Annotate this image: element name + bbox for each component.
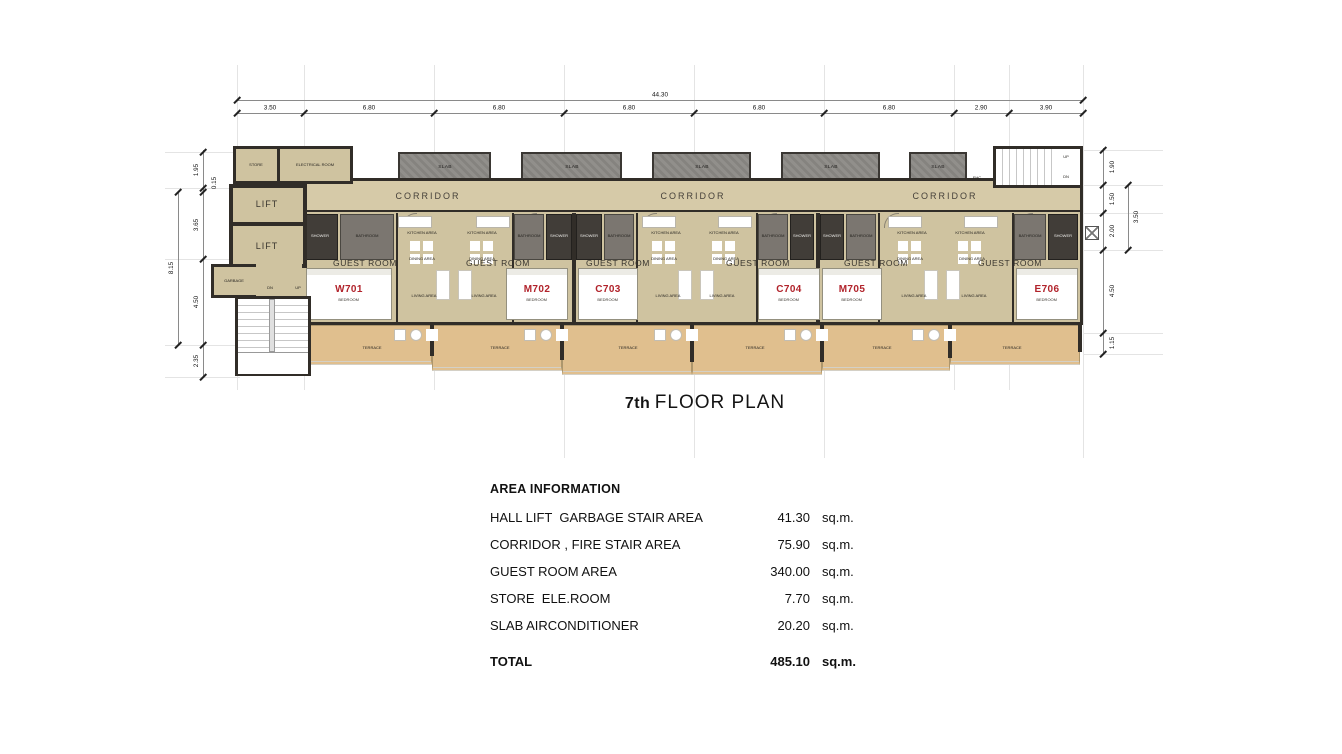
table-row: GUEST ROOM AREA 340.00 sq.m.	[490, 564, 874, 591]
dim-top: 6.80	[753, 104, 765, 111]
row-value: 7.70	[740, 591, 810, 606]
bedroom-label: BEDROOM	[527, 298, 548, 302]
stair-rail	[269, 299, 275, 352]
row-unit: sq.m.	[810, 591, 874, 606]
bed-c704: C704 BEDROOM	[758, 268, 820, 320]
sofa	[436, 270, 450, 300]
row-value: 340.00	[740, 564, 810, 579]
terrace-furniture	[912, 329, 924, 341]
bed-w701: W701 BEDROOM	[306, 268, 392, 320]
corridor-label: CORRIDOR	[913, 191, 978, 201]
dining-table	[652, 241, 662, 251]
terrace-divider	[690, 322, 694, 362]
dim-right: 1.50	[1108, 193, 1115, 205]
hall-floor	[256, 262, 302, 300]
terrace-furniture	[394, 329, 406, 341]
bed-e706: E706 BEDROOM	[1016, 268, 1078, 320]
fhc-label: FHC	[973, 176, 981, 180]
room-number: E706	[1035, 285, 1060, 295]
grid-line	[1083, 150, 1163, 151]
table-total-row: TOTAL 485.10 sq.m.	[490, 654, 874, 681]
shower-label: SHOWER	[580, 234, 598, 238]
row-label: GUEST ROOM AREA	[490, 564, 740, 579]
bathroom-label: BATHROOM	[356, 234, 379, 238]
kitchen-label: KITCHEN AREA	[955, 231, 984, 235]
slab-label: SLAB	[824, 165, 837, 170]
row-unit: sq.m.	[810, 564, 874, 579]
terrace-label: TERRACE	[362, 346, 381, 350]
row-unit: sq.m.	[810, 510, 874, 525]
living-label: LIVING AREA	[710, 294, 735, 298]
guest-room-label: GUEST ROOM	[844, 258, 908, 268]
kitchen-counter	[476, 216, 510, 228]
stair-dn-label: DN	[267, 286, 273, 290]
stair-dn-label: DN	[1063, 175, 1069, 179]
dim-right: 1.90	[1108, 161, 1115, 173]
room-number: C704	[776, 285, 802, 295]
grid-line	[1083, 185, 1163, 186]
terrace-furniture	[524, 329, 536, 341]
shower-label: SHOWER	[550, 234, 568, 238]
sofa	[946, 270, 960, 300]
terrace-divider	[430, 322, 434, 356]
guest-room-label: GUEST ROOM	[333, 258, 397, 268]
terrace-label: TERRACE	[872, 346, 891, 350]
guest-room-label: GUEST ROOM	[726, 258, 790, 268]
terrace-furniture	[410, 329, 422, 341]
terrace-end-wall	[1078, 322, 1082, 352]
bed-m705: M705 BEDROOM	[822, 268, 882, 320]
dim-left: 0.15	[210, 177, 217, 189]
bedroom-label: BEDROOM	[1037, 298, 1058, 302]
row-unit: sq.m.	[810, 537, 874, 552]
terrace-divider	[560, 322, 564, 360]
kitchen-counter	[718, 216, 752, 228]
lift-label: LIFT	[256, 199, 279, 209]
dim-top: 3.50	[264, 104, 276, 111]
dining-label: DINING AREA	[409, 257, 435, 261]
dim-total-top: 44.30	[652, 91, 668, 98]
grid-line	[1083, 213, 1163, 214]
kitchen-counter	[642, 216, 676, 228]
ac-unit-box	[1085, 226, 1099, 240]
shower-label: SHOWER	[311, 234, 329, 238]
kitchen-label: KITCHEN AREA	[407, 231, 436, 235]
plan-title-rest: FLOOR PLAN	[655, 392, 785, 413]
grid-line	[1083, 250, 1163, 251]
table-row: STORE ELE.ROOM 7.70 sq.m.	[490, 591, 874, 618]
bedroom-label: BEDROOM	[779, 298, 800, 302]
dimension-line-overall	[237, 100, 1083, 101]
kitchen-label: KITCHEN AREA	[709, 231, 738, 235]
bathroom-label: BATHROOM	[608, 234, 631, 238]
sofa	[458, 270, 472, 300]
dim-left: 1.95	[192, 164, 199, 176]
dim-right: 1.15	[1108, 337, 1115, 349]
living-label: LIVING AREA	[472, 294, 497, 298]
grid-line	[1083, 354, 1163, 355]
plan-title: 7th FLOOR PLAN	[540, 392, 870, 414]
grid-line	[1083, 65, 1084, 458]
shower-label: SHOWER	[823, 234, 841, 238]
table-row: CORRIDOR , FIRE STAIR AREA 75.90 sq.m.	[490, 537, 874, 564]
terrace-furniture	[928, 329, 940, 341]
room-number: M702	[524, 285, 551, 295]
dim-top: 2.90	[975, 104, 987, 111]
area-table-title: AREA INFORMATION	[490, 482, 874, 496]
living-label: LIVING AREA	[902, 294, 927, 298]
corridor-label: CORRIDOR	[661, 191, 726, 201]
store-label: STORE	[249, 163, 263, 167]
bed-m702: M702 BEDROOM	[506, 268, 568, 320]
dim-top: 6.80	[363, 104, 375, 111]
bed-c703: C703 BEDROOM	[578, 268, 638, 320]
terrace-furniture	[784, 329, 796, 341]
row-unit: sq.m.	[810, 618, 874, 633]
row-label: CORRIDOR , FIRE STAIR AREA	[490, 537, 740, 552]
dining-label: DINING AREA	[651, 257, 677, 261]
total-unit: sq.m.	[810, 654, 874, 669]
lift-label: LIFT	[256, 241, 279, 251]
terrace-furniture	[670, 329, 682, 341]
kitchen-counter	[888, 216, 922, 228]
living-label: LIVING AREA	[962, 294, 987, 298]
dining-table	[470, 241, 480, 251]
terrace-divider	[948, 322, 952, 358]
living-label: LIVING AREA	[656, 294, 681, 298]
row-label: SLAB AIRCONDITIONER	[490, 618, 740, 633]
living-label: LIVING AREA	[412, 294, 437, 298]
slab-label: SLAB	[695, 165, 708, 170]
bedroom-label: BEDROOM	[598, 298, 619, 302]
store-divider-wall	[277, 146, 280, 184]
dimension-line-right-total	[1128, 185, 1129, 250]
lift-block	[229, 184, 307, 268]
slab-label: SLAB	[438, 165, 451, 170]
corridor-label: CORRIDOR	[396, 191, 461, 201]
dim-left-total: 8.15	[167, 262, 174, 274]
room-number: C703	[595, 285, 621, 295]
terrace-label: TERRACE	[1002, 346, 1021, 350]
dimension-line-right	[1103, 148, 1104, 355]
kitchen-label: KITCHEN AREA	[467, 231, 496, 235]
dining-table	[898, 241, 908, 251]
kitchen-counter	[964, 216, 998, 228]
terrace-furniture	[800, 329, 812, 341]
bathroom-label: BATHROOM	[762, 234, 785, 238]
dim-left: 3.65	[192, 219, 199, 231]
dining-table	[410, 241, 420, 251]
dim-right: 4.50	[1108, 285, 1115, 297]
stair-up-label: UP	[1063, 155, 1069, 159]
guest-room-label: GUEST ROOM	[466, 258, 530, 268]
shower-label: SHOWER	[1054, 234, 1072, 238]
dim-left: 4.50	[192, 296, 199, 308]
table-row: HALL LIFT GARBAGE STAIR AREA 41.30 sq.m.	[490, 510, 874, 537]
table-row: SLAB AIRCONDITIONER 20.20 sq.m.	[490, 618, 874, 645]
bedroom-label: BEDROOM	[339, 298, 360, 302]
dim-right: 2.00	[1108, 225, 1115, 237]
dim-right-total: 3.50	[1132, 211, 1139, 223]
terrace-label: TERRACE	[618, 346, 637, 350]
stair-landing	[238, 352, 308, 374]
guest-room-label: GUEST ROOM	[586, 258, 650, 268]
dining-table	[712, 241, 722, 251]
terrace-furniture	[540, 329, 552, 341]
dim-top: 6.80	[623, 104, 635, 111]
dim-top: 6.80	[883, 104, 895, 111]
row-value: 75.90	[740, 537, 810, 552]
stair-up-label: UP	[295, 286, 301, 290]
room-number: M705	[839, 285, 866, 295]
garbage-label: GARBAGE	[224, 279, 244, 283]
total-label: TOTAL	[490, 654, 740, 669]
bedroom-label: BEDROOM	[842, 298, 863, 302]
slab-label: SLAB	[565, 165, 578, 170]
row-value: 20.20	[740, 618, 810, 633]
row-label: STORE ELE.ROOM	[490, 591, 740, 606]
kitchen-label: KITCHEN AREA	[897, 231, 926, 235]
dim-top: 6.80	[493, 104, 505, 111]
bathroom-label: BATHROOM	[1019, 234, 1042, 238]
kitchen-counter	[398, 216, 432, 228]
terrace-divider	[820, 322, 824, 362]
row-label: HALL LIFT GARBAGE STAIR AREA	[490, 510, 740, 525]
dim-left: 2.35	[192, 355, 199, 367]
room-number: W701	[335, 285, 363, 295]
guest-room-label: GUEST ROOM	[978, 258, 1042, 268]
dimension-line-left-total	[178, 192, 179, 345]
total-value: 485.10	[740, 654, 810, 669]
bathroom-label: BATHROOM	[518, 234, 541, 238]
bathroom-label: BATHROOM	[850, 234, 873, 238]
terrace-label: TERRACE	[490, 346, 509, 350]
dim-top: 3.90	[1040, 104, 1052, 111]
terrace-label: TERRACE	[745, 346, 764, 350]
area-information-table: AREA INFORMATION HALL LIFT GARBAGE STAIR…	[490, 482, 874, 681]
kitchen-label: KITCHEN AREA	[651, 231, 680, 235]
grid-line	[1083, 333, 1163, 334]
shower-label: SHOWER	[793, 234, 811, 238]
row-value: 41.30	[740, 510, 810, 525]
lift-divider-wall	[229, 222, 307, 226]
terrace-furniture	[654, 329, 666, 341]
floor-plan-sheet: 44.30 3.50 6.80 6.80 6.80 6.80 6.80 2.90…	[0, 0, 1342, 754]
corridor-south-wall	[298, 210, 1080, 212]
electrical-room-label: ELECTRICAL ROOM	[296, 163, 334, 167]
slab-label: SLAB	[931, 165, 944, 170]
dimension-line-segments	[237, 113, 1083, 114]
plan-title-floor: 7th	[625, 395, 651, 412]
dining-table	[958, 241, 968, 251]
